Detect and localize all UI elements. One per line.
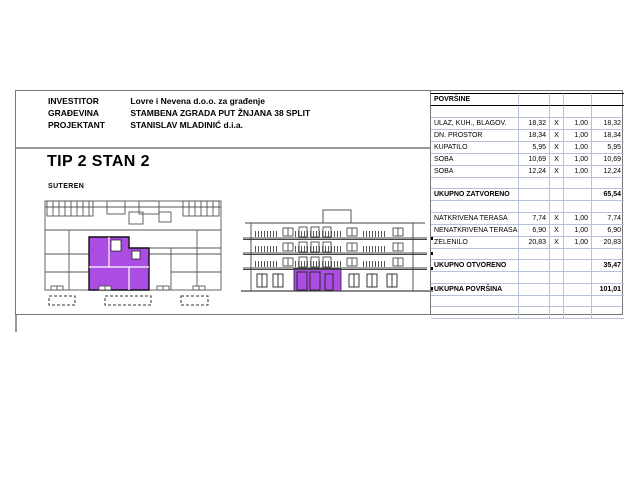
investor-row: INVESTITOR Lovre i Nevena d.o.o. za građ… <box>48 95 265 107</box>
spacer-row <box>431 106 624 118</box>
header-separator <box>16 147 430 149</box>
table-row: ZELENILO20,83 X1,00 20,83 <box>431 237 624 249</box>
elevation-upper-floors <box>255 227 403 267</box>
subtotal-open-row: UKUPNO OTVORENO 35,47 <box>431 260 624 272</box>
table-row: DN. PROSTOR18,34 X1,00 18,34 <box>431 130 624 142</box>
areas-table-title: POVRŠINE <box>431 93 519 106</box>
areas-table: POVRŠINE ULAZ, KUH., BLAGOV.18,32 X1,00 … <box>431 93 624 319</box>
designer-value: STANISLAV MLADINIĆ d.i.a. <box>130 119 243 131</box>
sheet-frame: INVESTITOR Lovre i Nevena d.o.o. za građ… <box>15 90 623 315</box>
subtotal-closed-row: UKUPNO ZATVORENO 65,54 <box>431 189 624 201</box>
page-title: TIP 2 STAN 2 <box>47 153 150 171</box>
investor-value: Lovre i Nevena d.o.o. za građenje <box>130 95 265 107</box>
spacer-row <box>431 296 624 308</box>
investor-label: INVESTITOR <box>48 95 128 107</box>
spacer-row <box>431 307 624 319</box>
floor-label: SUTEREN <box>48 183 84 190</box>
spacer-row <box>431 201 624 213</box>
building-row: GRAĐEVINA STAMBENA ZGRADA PUT ŽNJANA 38 … <box>48 107 310 119</box>
building-value: STAMBENA ZGRADA PUT ŽNJANA 38 SPLIT <box>130 107 310 119</box>
building-label: GRAĐEVINA <box>48 107 128 119</box>
spacer-row <box>431 272 624 284</box>
floor-plan-drawing <box>41 196 226 318</box>
document-page: { "header": { "rows": [ {"label": "INVES… <box>0 0 640 480</box>
table-row: ULAZ, KUH., BLAGOV.18,32 X1,00 18,32 <box>431 118 624 130</box>
frame-edge-tail <box>15 315 17 332</box>
table-row: NATKRIVENA TERASA7,74 X1,00 7,74 <box>431 213 624 225</box>
table-row: KUPATILO5,95 X1,00 5,95 <box>431 142 624 154</box>
balcony-railings <box>255 234 385 264</box>
spacer-row <box>431 249 624 261</box>
spacer-row <box>431 178 624 190</box>
table-row: SOBA10,69 X1,00 10,69 <box>431 154 624 166</box>
plan-terrace-dashed-outlines <box>49 296 208 305</box>
table-row: SOBA12,24 X1,00 12,24 <box>431 166 624 178</box>
table-row: NENATKRIVENA TERASA6,90 X1,00 6,90 <box>431 225 624 237</box>
designer-row: PROJEKTANT STANISLAV MLADINIĆ d.i.a. <box>48 119 243 131</box>
designer-label: PROJEKTANT <box>48 119 128 131</box>
elevation-drawing <box>237 201 437 301</box>
areas-table-header-row: POVRŠINE <box>431 93 624 106</box>
grand-total-row: UKUPNA POVRŠINA 101,01 <box>431 284 624 296</box>
